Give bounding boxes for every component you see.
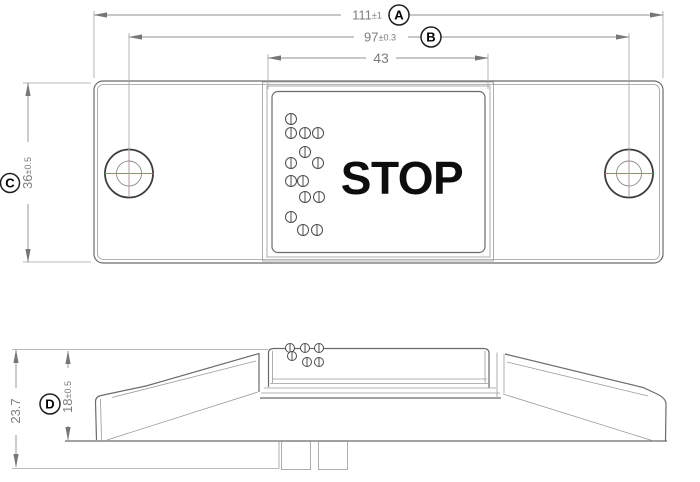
- svg-text:97±0.3: 97±0.3: [364, 30, 396, 45]
- ref-letter-d: D: [45, 397, 54, 412]
- button-cap-side: [269, 349, 490, 389]
- dim-value: 23.7: [8, 398, 23, 423]
- dimension-overall-height: 36±0.5 C: [1, 83, 92, 262]
- dim-value: 97: [364, 30, 378, 45]
- svg-text:111±1: 111±1: [352, 8, 382, 23]
- dim-value: 18: [60, 398, 75, 412]
- dim-value: 36: [20, 174, 35, 188]
- dim-tolerance: ±0.5: [23, 157, 33, 174]
- terminal-tab: [319, 442, 348, 470]
- stop-switch-drawing: STOP 111±1 A 97±0.3 B 43: [0, 0, 700, 482]
- ref-letter-a: A: [394, 8, 404, 23]
- dim-tolerance: ±0.5: [63, 381, 73, 398]
- braille-dots-top-view: [286, 114, 325, 236]
- svg-text:18±0.5: 18±0.5: [60, 381, 75, 413]
- dim-tolerance: ±0.3: [379, 33, 396, 43]
- left-shoulder: [96, 354, 260, 441]
- right-shoulder: [497, 353, 666, 442]
- technical-drawing-page: STOP 111±1 A 97±0.3 B 43: [0, 0, 700, 482]
- bottom-terminals: [279, 441, 348, 470]
- top-view: STOP: [94, 81, 663, 263]
- side-view: [65, 344, 667, 470]
- dimension-button-width: 43: [268, 50, 488, 89]
- dim-value: 111: [352, 8, 372, 23]
- terminal-tab: [282, 442, 311, 470]
- stop-label: STOP: [341, 152, 463, 204]
- ref-letter-c: C: [5, 176, 15, 191]
- ref-letter-b: B: [426, 30, 435, 45]
- svg-text:36±0.5: 36±0.5: [20, 157, 35, 189]
- braille-dots-side-view: [286, 344, 324, 367]
- dim-tolerance: ±1: [372, 11, 382, 21]
- dimension-body-height: 18±0.5 D: [40, 351, 76, 440]
- dim-value: 43: [373, 50, 389, 66]
